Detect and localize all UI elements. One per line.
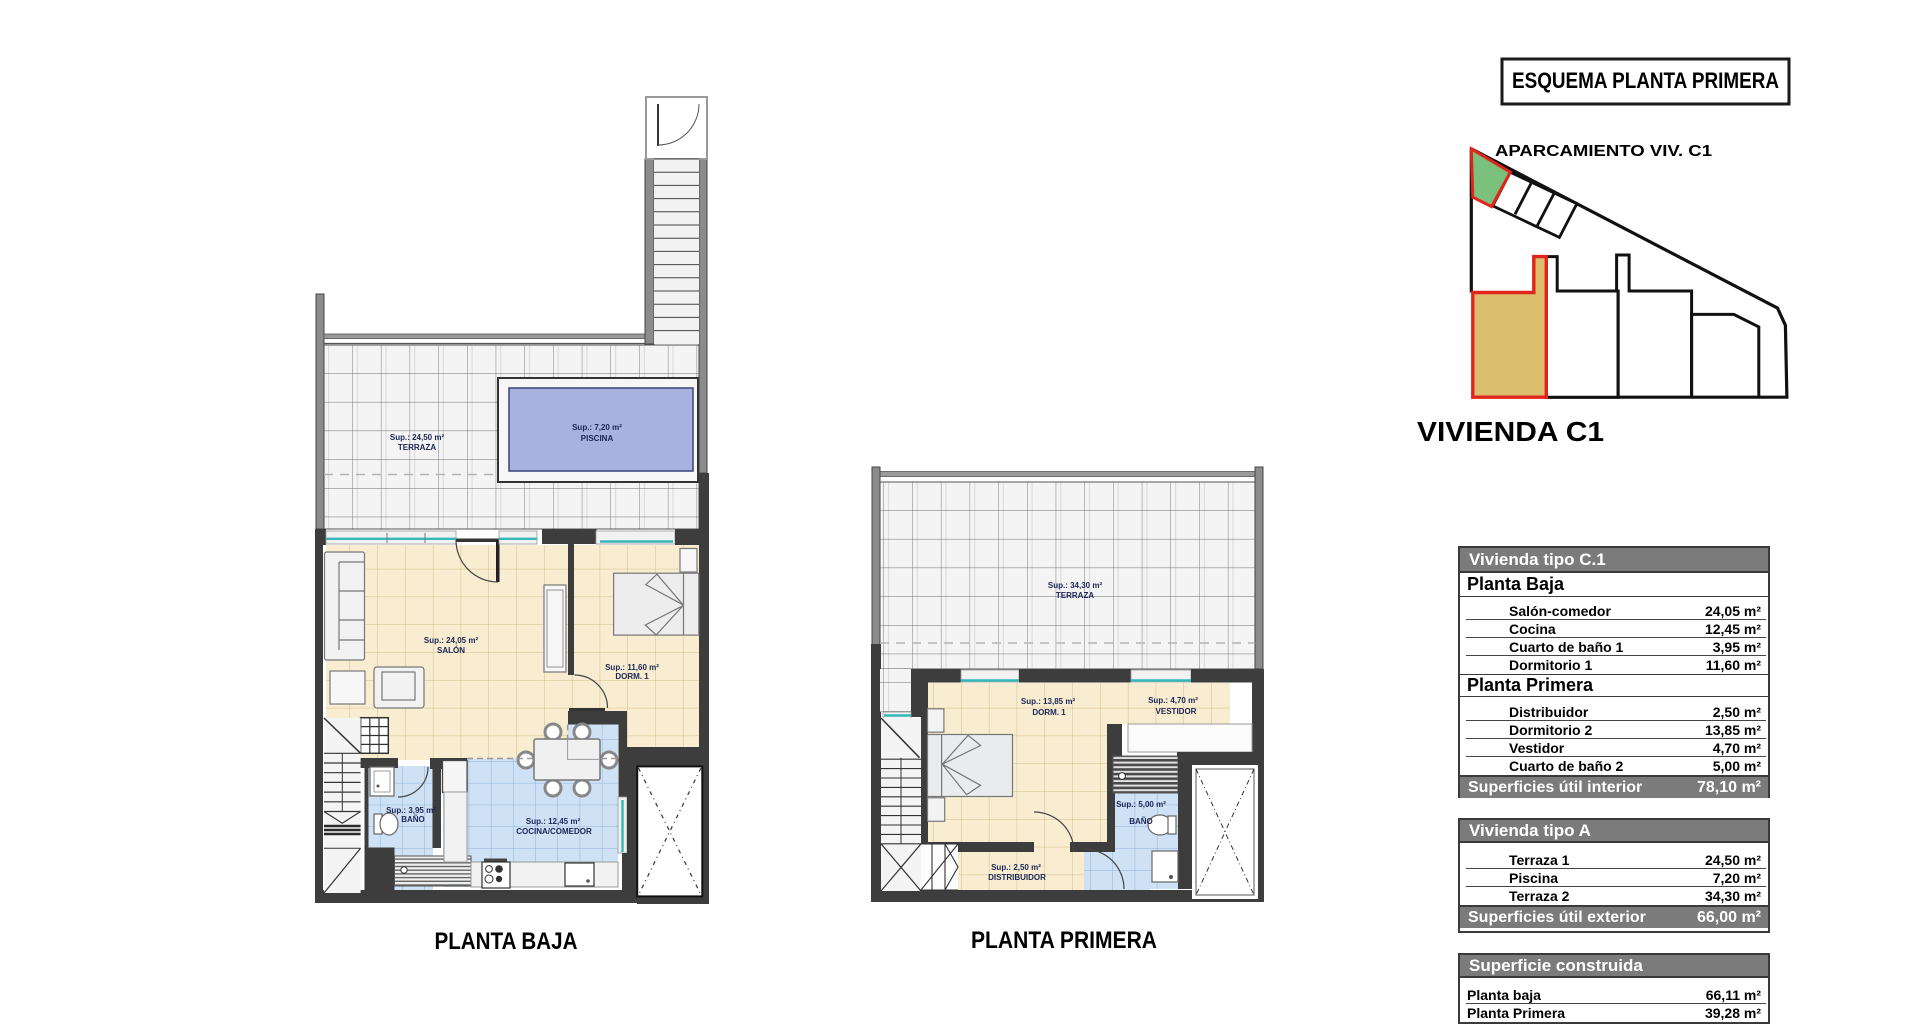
svg-text:PISCINA: PISCINA [581,434,614,443]
svg-text:DORM. 1: DORM. 1 [1032,708,1066,717]
svg-text:Sup.: 12,45 m²: Sup.: 12,45 m² [526,817,581,826]
svg-text:TERRAZA: TERRAZA [398,443,436,452]
svg-text:TERRAZA: TERRAZA [1056,591,1094,600]
svg-text:ESQUEMA PLANTA PRIMERA: ESQUEMA PLANTA PRIMERA [1512,68,1779,93]
svg-text:Sup.: 2,50 m²: Sup.: 2,50 m² [991,863,1041,872]
svg-text:COCINA/COMEDOR: COCINA/COMEDOR [516,827,592,836]
svg-text:Sup.: 5,00 m²: Sup.: 5,00 m² [1116,800,1166,809]
svg-text:VESTIDOR: VESTIDOR [1156,707,1197,716]
svg-text:DORM. 1: DORM. 1 [615,672,649,681]
svg-text:VIVIENDA C1: VIVIENDA C1 [1417,416,1604,447]
svg-text:PLANTA PRIMERA: PLANTA PRIMERA [971,927,1157,954]
svg-text:PLANTA BAJA: PLANTA BAJA [435,928,578,955]
svg-text:Sup.: 3,95 m²: Sup.: 3,95 m² [386,806,436,815]
svg-text:Sup.: 13,85 m²: Sup.: 13,85 m² [1021,697,1076,706]
svg-text:Sup.: 34,30 m²: Sup.: 34,30 m² [1048,581,1103,590]
svg-text:Sup.: 11,60 m²: Sup.: 11,60 m² [605,663,659,672]
svg-text:Sup.: 4,70 m²: Sup.: 4,70 m² [1148,696,1198,705]
svg-text:Sup.: 24,05 m²: Sup.: 24,05 m² [424,636,479,645]
svg-text:APARCAMIENTO VIV. C1: APARCAMIENTO VIV. C1 [1495,143,1712,160]
svg-text:BAÑO: BAÑO [1129,817,1153,826]
svg-text:SALÓN: SALÓN [437,646,465,655]
svg-text:DISTRIBUIDOR: DISTRIBUIDOR [988,873,1046,882]
svg-text:BAÑO: BAÑO [401,815,425,824]
svg-text:Sup.: 7,20 m²: Sup.: 7,20 m² [572,423,622,432]
svg-text:Sup.: 24,50 m²: Sup.: 24,50 m² [390,433,445,442]
